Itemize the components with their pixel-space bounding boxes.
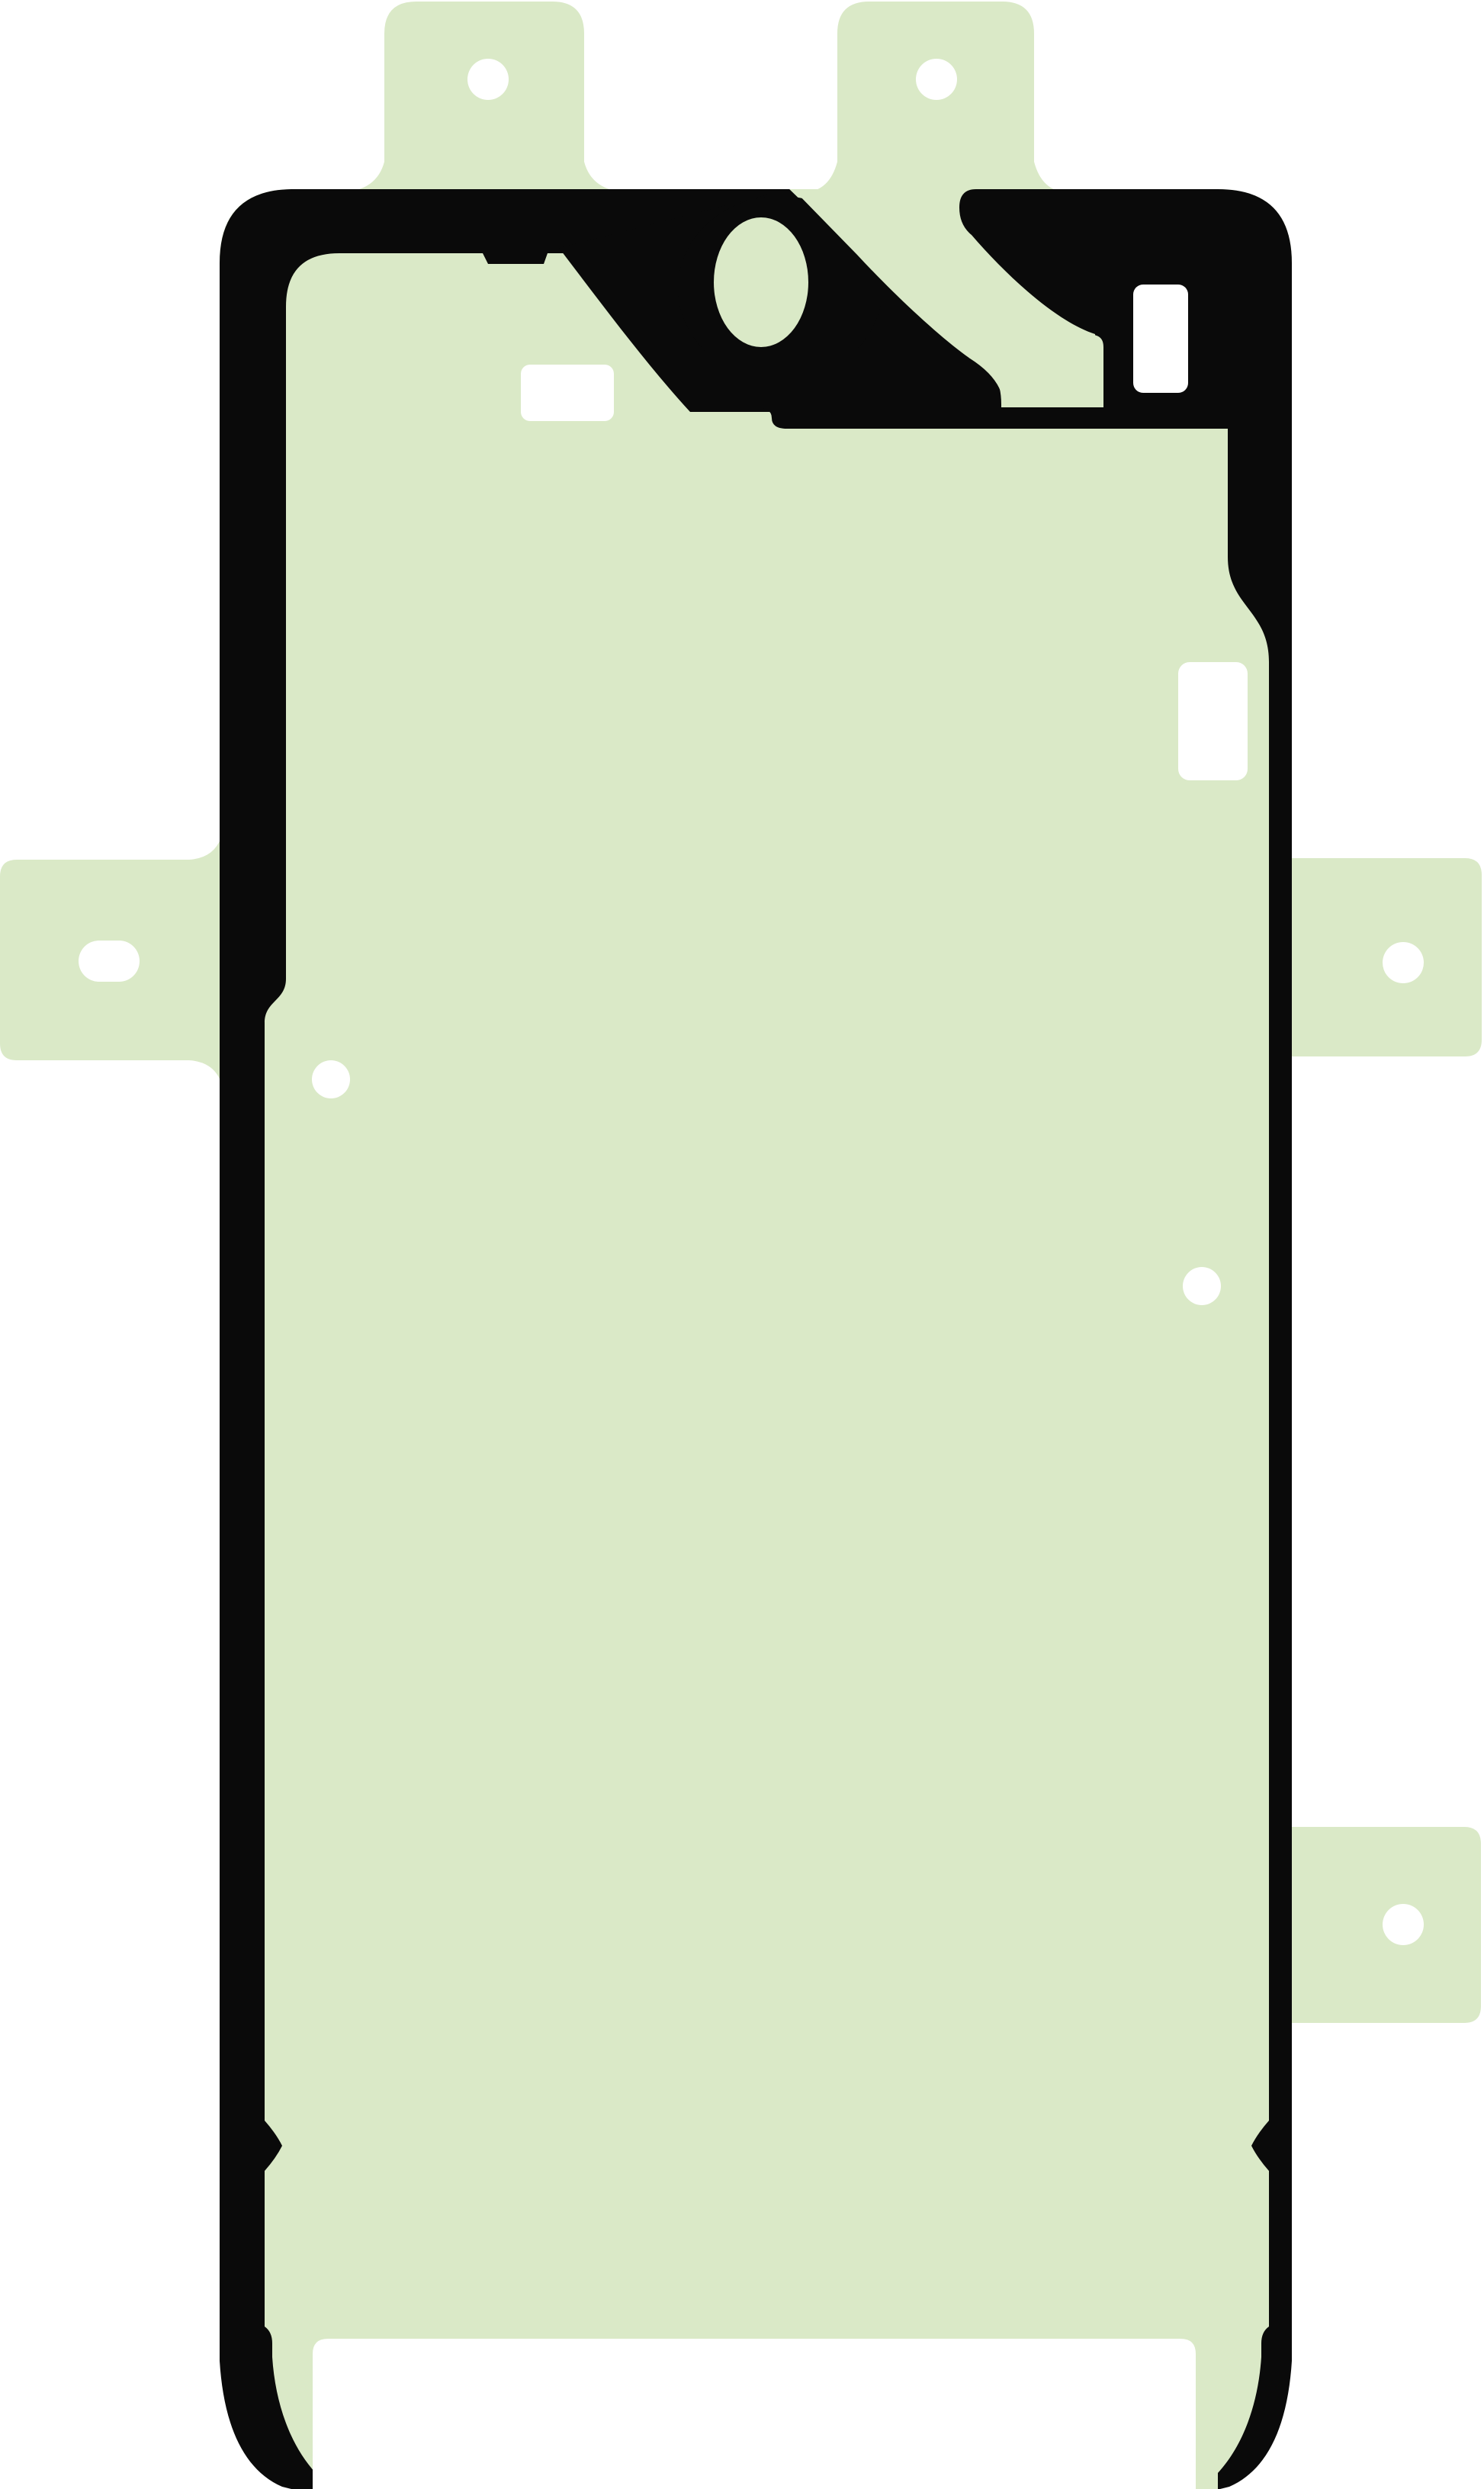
window-cutout-top-left <box>521 365 614 421</box>
adhesive-sheet-svg: Smartphone display adhesive sticker temp… <box>0 0 1484 2489</box>
hole-tab-top-left <box>467 59 509 100</box>
hole-tab-left-pill <box>79 941 140 982</box>
window-cutout-right-side <box>1178 662 1248 780</box>
window-cutout-top-right <box>1133 285 1188 393</box>
hole-tab-right-upper <box>1383 942 1424 983</box>
hole-tab-right-lower <box>1383 1904 1424 1945</box>
adhesive-sticker-illustration: Smartphone display adhesive sticker temp… <box>0 0 1484 2489</box>
alignment-dot-left <box>312 1060 350 1098</box>
hole-tab-top-right <box>916 59 957 100</box>
sheet-body <box>220 189 1292 2489</box>
under-camera-band <box>690 351 1001 412</box>
alignment-dot-right <box>1183 1267 1221 1305</box>
camera-hole <box>714 217 808 347</box>
bottom-release-cutout <box>313 2339 1196 2489</box>
inlet-pocket-green <box>1004 362 1103 407</box>
